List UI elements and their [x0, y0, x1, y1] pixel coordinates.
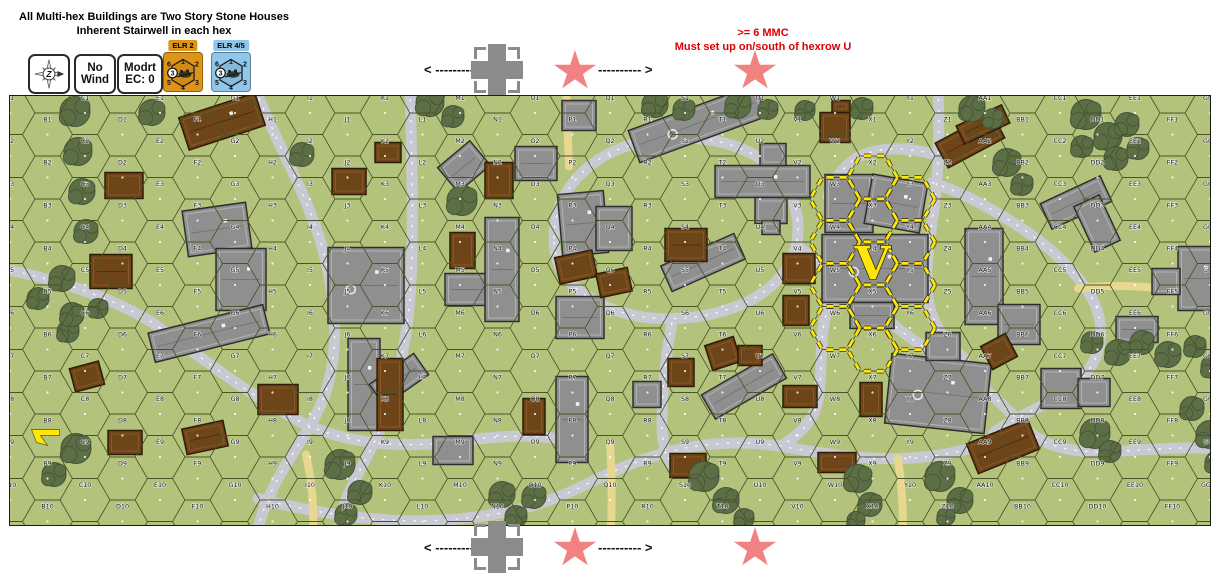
tree-cluster: [1114, 113, 1139, 137]
hex-center-dot: [346, 520, 348, 522]
hex-center-dot: [496, 477, 498, 479]
hex-center-dot: [234, 499, 236, 501]
hex-center-dot: [759, 155, 761, 157]
hex-center-dot: [534, 456, 536, 458]
hex-center-dot: [1134, 413, 1136, 415]
hex-center-dot: [309, 499, 311, 501]
tree-cluster: [334, 504, 357, 526]
hex-center-dot: [571, 305, 573, 307]
hex-center-dot: [909, 284, 911, 286]
hex-center-dot: [834, 499, 836, 501]
tree-cluster: [924, 462, 955, 492]
hex-center-dot: [609, 198, 611, 200]
hex-center-dot: [459, 499, 461, 501]
hex-center-dot: [46, 219, 48, 221]
hex-center-dot: [646, 520, 648, 522]
tree-cluster: [521, 485, 546, 509]
hex-center-dot: [796, 305, 798, 307]
hex-center-dot: [1134, 241, 1136, 243]
tree-cluster: [73, 220, 98, 244]
wooden-building: [665, 229, 707, 262]
hex-center-dot: [1059, 413, 1061, 415]
svg-text:1: 1: [181, 59, 185, 66]
hex-center-dot: [871, 520, 873, 522]
stone-building: [1152, 269, 1180, 295]
compass-rose-icon: Z: [32, 58, 66, 90]
hex-center-dot: [234, 413, 236, 415]
hex-center-dot: [909, 499, 911, 501]
hex-center-dot: [946, 219, 948, 221]
hex-center-dot: [384, 413, 386, 415]
hex-center-dot: [46, 520, 48, 522]
hex-center-dot: [1021, 434, 1023, 436]
hex-center-dot: [1171, 434, 1173, 436]
hex-center-dot: [84, 499, 86, 501]
hex-center-dot: [159, 370, 161, 372]
hex-center-dot: [271, 348, 273, 350]
elr-counter-axis[interactable]: ELR 2 6 1 2 5 4 3 3: [163, 52, 203, 92]
stone-building: [762, 221, 780, 235]
hex-center-dot: [496, 348, 498, 350]
hex-center-dot: [309, 241, 311, 243]
hex-center-dot: [196, 520, 198, 522]
hex-center-dot: [646, 434, 648, 436]
stone-building: [556, 377, 588, 463]
hex-center-dot: [871, 391, 873, 393]
hex-center-dot: [234, 284, 236, 286]
hex-center-dot: [609, 413, 611, 415]
svg-text:5: 5: [167, 80, 171, 87]
hex-center-dot: [309, 112, 311, 114]
tree-cluster: [68, 179, 95, 205]
compass-letter: Z: [45, 69, 52, 79]
hex-center-dot: [721, 391, 723, 393]
hex-center-dot: [346, 219, 348, 221]
hex-center-dot: [909, 413, 911, 415]
hex-center-dot: [421, 176, 423, 178]
stone-building: [485, 218, 519, 322]
hex-center-dot: [1021, 477, 1023, 479]
hex-center-dot: [496, 133, 498, 135]
hex-center-dot: [309, 370, 311, 372]
hex-center-dot: [309, 327, 311, 329]
hex-center-dot: [1171, 176, 1173, 178]
hex-center-dot: [871, 219, 873, 221]
tree-cluster: [688, 462, 719, 492]
map-svg[interactable]: A1A2A3A4A5A6A7A8A9A10B1B2B3B4B5B6B7B8B9B…: [10, 96, 1210, 525]
victory-location-marker[interactable]: V: [854, 237, 892, 291]
svg-text:3: 3: [219, 71, 223, 78]
wooden-building: [783, 296, 809, 326]
hex-center-dot: [384, 241, 386, 243]
hex-center-dot: [384, 499, 386, 501]
hex-center-dot: [421, 305, 423, 307]
hex-center-dot: [646, 477, 648, 479]
soviet-star-marker-top-2[interactable]: [733, 50, 777, 92]
hex-center-dot: [121, 520, 123, 522]
stone-building: [1078, 379, 1110, 407]
hex-center-dot: [234, 327, 236, 329]
hex-center-dot: [84, 413, 86, 415]
hex-center-dot: [1059, 112, 1061, 114]
hex-center-dot: [984, 241, 986, 243]
hex-center-dot: [346, 434, 348, 436]
tree-cluster: [347, 481, 372, 505]
hex-center-dot: [946, 391, 948, 393]
hex-center-dot: [721, 262, 723, 264]
hex-center-dot: [309, 155, 311, 157]
hex-center-dot: [796, 262, 798, 264]
hex-center-dot: [796, 434, 798, 436]
hex-center-dot: [1171, 348, 1173, 350]
hex-center-dot: [1171, 305, 1173, 307]
hex-center-dot: [684, 112, 686, 114]
hex-center-dot: [1134, 456, 1136, 458]
hex-center-dot: [234, 112, 236, 114]
hex-center-dot: [159, 112, 161, 114]
hex-center-dot: [384, 370, 386, 372]
hex-center-dot: [684, 284, 686, 286]
svg-text:1: 1: [229, 59, 233, 66]
hex-center-dot: [309, 284, 311, 286]
hex-center-dot: [196, 391, 198, 393]
tree-cluster: [1080, 332, 1103, 354]
hex-center-dot: [834, 241, 836, 243]
hex-center-dot: [271, 477, 273, 479]
elr-allied-tab: ELR 4/5: [213, 40, 249, 51]
hex-center-dot: [384, 327, 386, 329]
hex-center-dot: [759, 370, 761, 372]
hex-center-dot: [459, 370, 461, 372]
hex-center-dot: [721, 348, 723, 350]
hex-center-dot: [984, 284, 986, 286]
tree-cluster: [289, 143, 314, 167]
hex-center-dot: [684, 155, 686, 157]
hex-center-dot: [1059, 327, 1061, 329]
wooden-building: [783, 254, 815, 284]
hex-center-dot: [871, 434, 873, 436]
environmental-conditions-counter[interactable]: Modrt EC: 0: [117, 54, 163, 94]
tree-cluster: [724, 96, 751, 119]
wooden-building: [738, 346, 762, 366]
hex-center-dot: [1096, 133, 1098, 135]
hex-center-dot: [796, 133, 798, 135]
hex-center-dot: [84, 456, 86, 458]
hex-center-dot: [384, 198, 386, 200]
hex-center-dot: [346, 176, 348, 178]
hex-center-dot: [496, 219, 498, 221]
hex-center-dot: [984, 155, 986, 157]
hex-center-dot: [984, 370, 986, 372]
hex-center-dot: [496, 305, 498, 307]
hex-center-dot: [496, 176, 498, 178]
hex-center-dot: [159, 499, 161, 501]
hex-center-dot: [684, 456, 686, 458]
hex-center-dot: [309, 413, 311, 415]
svg-text:6: 6: [215, 62, 219, 69]
wooden-building: [783, 386, 817, 408]
hex-center-dot: [1021, 520, 1023, 522]
hex-center-dot: [1096, 391, 1098, 393]
hex-center-dot: [721, 133, 723, 135]
hex-center-dot: [1096, 305, 1098, 307]
tree-cluster: [672, 99, 695, 121]
hex-center-dot: [271, 520, 273, 522]
hex-center-dot: [609, 327, 611, 329]
hex-center-dot: [609, 370, 611, 372]
setup-note: >= 6 MMC Must set up on/south of hexrow …: [652, 27, 874, 55]
hex-center-dot: [1021, 305, 1023, 307]
hex-center-dot: [609, 284, 611, 286]
hex-center-dot: [121, 262, 123, 264]
stone-building: [760, 144, 786, 166]
stone-building: [885, 353, 992, 433]
hex-center-dot: [759, 241, 761, 243]
wooden-building: [523, 399, 545, 435]
hex-center-dot: [759, 456, 761, 458]
vasl-scenario-board: All Multi-hex Buildings are Two Story St…: [0, 0, 1218, 574]
tree-cluster: [488, 482, 515, 508]
hex-center-dot: [984, 499, 986, 501]
stone-building: [755, 198, 787, 224]
hex-center-dot: [946, 348, 948, 350]
svg-text:4: 4: [181, 85, 185, 92]
stone-building: [556, 297, 604, 339]
hex-center-dot: [234, 241, 236, 243]
hex-center-dot: [1021, 391, 1023, 393]
hex-center-dot: [759, 499, 761, 501]
wooden-building: [90, 255, 132, 289]
compass-direction-counter[interactable]: Z: [28, 54, 70, 94]
hex-center-dot: [571, 434, 573, 436]
hex-center-dot: [1096, 219, 1098, 221]
hex-center-dot: [1096, 434, 1098, 436]
hex-center-dot: [1134, 284, 1136, 286]
hex-center-dot: [421, 520, 423, 522]
wooden-building: [820, 113, 850, 143]
svg-text:2: 2: [195, 62, 199, 69]
hex-center-dot: [121, 348, 123, 350]
svg-text:3: 3: [171, 71, 175, 78]
tree-cluster: [41, 463, 66, 487]
tree-cluster: [26, 288, 49, 310]
tree-cluster: [1179, 397, 1204, 421]
hex-center-dot: [196, 133, 198, 135]
hex-center-dot: [46, 133, 48, 135]
hex-center-dot: [384, 112, 386, 114]
hex-center-dot: [46, 391, 48, 393]
hex-center-dot: [534, 370, 536, 372]
hex-center-dot: [496, 434, 498, 436]
hex-center-dot: [196, 477, 198, 479]
hex-center-dot: [684, 327, 686, 329]
wooden-building: [832, 101, 850, 113]
hex-center-dot: [946, 176, 948, 178]
hex-center-dot: [459, 327, 461, 329]
hex-center-dot: [1134, 112, 1136, 114]
hex-center-dot: [946, 477, 948, 479]
tree-cluster: [1103, 147, 1128, 171]
hex-center-dot: [721, 305, 723, 307]
hex-center-dot: [159, 456, 161, 458]
tree-cluster: [446, 186, 477, 216]
tree-cluster: [850, 98, 873, 120]
hex-center-dot: [796, 176, 798, 178]
top-right-entry-arrow: ---------- >: [598, 62, 653, 77]
hex-center-dot: [871, 305, 873, 307]
hex-center-dot: [196, 219, 198, 221]
hex-center-dot: [946, 520, 948, 522]
tree-cluster: [324, 450, 355, 480]
hex-center-dot: [1171, 391, 1173, 393]
hex-center-dot: [571, 391, 573, 393]
tree-cluster: [1129, 331, 1154, 355]
hex-center-dot: [571, 133, 573, 135]
hex-center-dot: [646, 305, 648, 307]
hex-center-dot: [834, 198, 836, 200]
hex-center-dot: [646, 391, 648, 393]
hex-center-dot: [1134, 370, 1136, 372]
hex-center-dot: [759, 413, 761, 415]
hex-center-dot: [571, 262, 573, 264]
hex-center-dot: [646, 219, 648, 221]
german-cross-marker-bottom[interactable]: [471, 521, 523, 573]
hex-center-dot: [1171, 477, 1173, 479]
hex-center-dot: [46, 262, 48, 264]
hex-center-dot: [46, 176, 48, 178]
hex-center-dot: [271, 133, 273, 135]
hex-center-dot: [834, 370, 836, 372]
hex-center-dot: [534, 155, 536, 157]
soviet-star-marker-bottom-2[interactable]: [733, 527, 777, 569]
tree-cluster: [1104, 340, 1131, 366]
hex-center-dot: [459, 456, 461, 458]
elr-allied-counter-face: 6 1 2 5 4 3 3: [211, 52, 251, 92]
hex-center-dot: [646, 262, 648, 264]
hex-center-dot: [1021, 262, 1023, 264]
tree-cluster: [441, 106, 464, 128]
hex-center-dot: [159, 413, 161, 415]
wooden-building: [668, 359, 694, 387]
hex-center-dot: [1096, 348, 1098, 350]
elr-axis-counter-face: 6 1 2 5 4 3 3: [163, 52, 203, 92]
hex-center-dot: [421, 434, 423, 436]
hex-center-dot: [609, 241, 611, 243]
hex-center-dot: [1171, 219, 1173, 221]
hex-center-dot: [459, 284, 461, 286]
wooden-building: [258, 385, 298, 415]
elr-axis-tab: ELR 2: [168, 40, 197, 51]
hex-center-dot: [421, 348, 423, 350]
hex-center-dot: [946, 434, 948, 436]
hex-center-dot: [234, 198, 236, 200]
hex-center-dot: [459, 241, 461, 243]
wooden-building: [485, 163, 513, 199]
hex-center-dot: [159, 155, 161, 157]
hex-center-dot: [1134, 198, 1136, 200]
tree-cluster: [138, 100, 165, 126]
hex-center-dot: [871, 348, 873, 350]
hex-center-dot: [459, 413, 461, 415]
wind-counter[interactable]: No Wind: [74, 54, 116, 94]
wooden-building: [375, 143, 401, 163]
hex-center-dot: [84, 112, 86, 114]
hex-center-dot: [1021, 133, 1023, 135]
hex-center-dot: [271, 176, 273, 178]
hex-center-dot: [84, 284, 86, 286]
hex-center-dot: [346, 305, 348, 307]
tree-cluster: [59, 97, 90, 127]
soviet-star-marker-bottom-1[interactable]: [553, 527, 597, 569]
hex-center-dot: [1059, 370, 1061, 372]
stone-building: [633, 382, 661, 408]
hex-center-dot: [496, 262, 498, 264]
ec-line2: EC: 0: [125, 74, 154, 86]
soviet-star-marker-top-1[interactable]: [553, 50, 597, 92]
hex-center-dot: [609, 112, 611, 114]
hex-center-dot: [871, 133, 873, 135]
hex-map-board[interactable]: A1A2A3A4A5A6A7A8A9A10B1B2B3B4B5B6B7B8B9B…: [9, 95, 1211, 526]
hex-center-dot: [1059, 284, 1061, 286]
hex-center-dot: [421, 262, 423, 264]
hex-center-dot: [609, 155, 611, 157]
hex-center-dot: [984, 327, 986, 329]
hex-center-dot: [1096, 520, 1098, 522]
hex-center-dot: [834, 413, 836, 415]
tree-cluster: [88, 299, 109, 319]
hex-center-dot: [121, 477, 123, 479]
hex-center-dot: [1021, 348, 1023, 350]
hex-center-dot: [909, 112, 911, 114]
hex-center-dot: [234, 370, 236, 372]
hex-center-dot: [271, 391, 273, 393]
setup-note-line1: >= 6 MMC: [652, 27, 874, 41]
hex-center-dot: [84, 241, 86, 243]
hex-center-dot: [1171, 262, 1173, 264]
hex-center-dot: [646, 176, 648, 178]
hex-center-dot: [909, 327, 911, 329]
hex-center-dot: [1059, 456, 1061, 458]
hex-center-dot: [496, 391, 498, 393]
hex-center-dot: [271, 434, 273, 436]
hex-center-dot: [46, 348, 48, 350]
hex-center-dot: [459, 112, 461, 114]
hex-center-dot: [946, 262, 948, 264]
instructions-line1: All Multi-hex Buildings are Two Story St…: [8, 10, 300, 24]
hex-center-dot: [909, 456, 911, 458]
hex-center-dot: [1134, 327, 1136, 329]
hex-center-dot: [1171, 133, 1173, 135]
hex-center-dot: [646, 133, 648, 135]
hex-center-dot: [159, 327, 161, 329]
hex-center-dot: [421, 477, 423, 479]
tree-cluster: [63, 138, 92, 166]
instructions-line2: Inherent Stairwell in each hex: [8, 24, 300, 38]
hex-center-dot: [796, 520, 798, 522]
hex-center-dot: [421, 219, 423, 221]
hex-center-dot: [421, 133, 423, 135]
hex-center-dot: [1021, 219, 1023, 221]
hex-center-dot: [84, 327, 86, 329]
hex-center-dot: [721, 434, 723, 436]
wooden-building: [332, 169, 366, 195]
hex-center-dot: [796, 348, 798, 350]
german-cross-marker-top[interactable]: [471, 44, 523, 96]
elr-counter-allied[interactable]: ELR 4/5 6 1 2 5 4 3 3: [211, 52, 251, 92]
bottom-right-entry-arrow: ---------- >: [598, 540, 653, 555]
hex-center-dot: [909, 198, 911, 200]
hex-center-dot: [571, 219, 573, 221]
